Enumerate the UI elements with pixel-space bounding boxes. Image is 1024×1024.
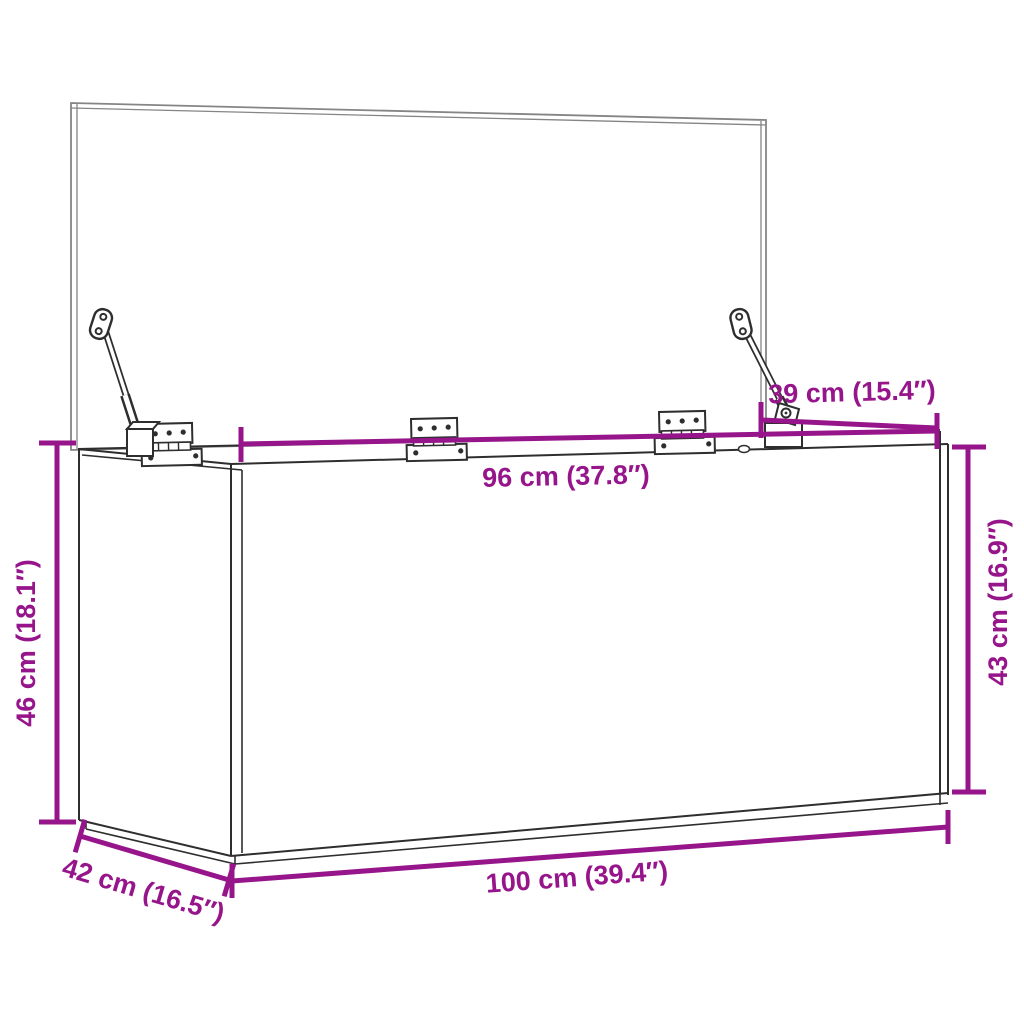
label-top-width: 96 cm (37.8″)	[482, 459, 650, 493]
box-front-bottom-edge	[231, 793, 948, 856]
lid-outline	[71, 103, 766, 450]
strut-eyelet-hole-top	[736, 313, 743, 320]
strut-eyelet-hole-top	[100, 313, 108, 321]
strut-eyelet-hole-bottom	[739, 328, 746, 335]
rim-knob	[739, 446, 750, 453]
strut-bracket-top	[127, 422, 159, 429]
lid-panel	[71, 103, 766, 450]
label-left-height: 46 cm (18.1″)	[11, 559, 41, 727]
box-body	[78, 430, 948, 864]
strut-eyelet-hole-bottom	[95, 327, 103, 335]
label-right-height: 43 cm (16.9″)	[983, 518, 1013, 686]
label-lid-depth: 39 cm (15.4″)	[768, 375, 936, 409]
product-dimension-diagram: 39 cm (15.4″) 96 cm (37.8″) 43 cm (16.9″…	[0, 0, 1024, 1024]
strut-pivot-dot	[785, 412, 788, 415]
diagram-canvas: 39 cm (15.4″) 96 cm (37.8″) 43 cm (16.9″…	[0, 0, 1024, 1024]
box-left-bottom-edge	[79, 820, 231, 856]
strut-bracket-front	[127, 429, 153, 456]
label-depth: 42 cm (16.5″)	[59, 852, 228, 928]
